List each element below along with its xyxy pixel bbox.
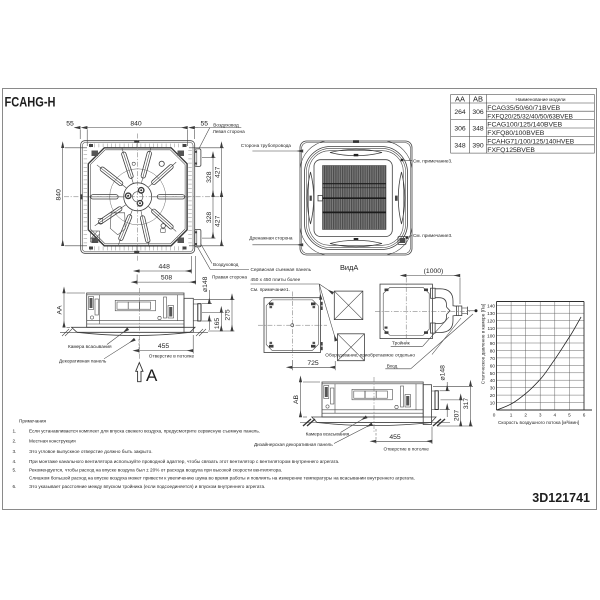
svg-text:40: 40 xyxy=(490,378,496,383)
svg-text:Примечания: Примечания xyxy=(19,419,47,424)
svg-text:Наименование модели: Наименование модели xyxy=(515,97,565,102)
svg-text:275: 275 xyxy=(225,309,232,321)
svg-text:10: 10 xyxy=(490,401,496,406)
svg-text:390: 390 xyxy=(472,142,484,149)
svg-text:⌀148: ⌀148 xyxy=(440,365,447,381)
svg-text:FXFQ125BVEB: FXFQ125BVEB xyxy=(487,147,535,154)
svg-text:60: 60 xyxy=(490,363,496,368)
svg-text:⌀148: ⌀148 xyxy=(202,276,209,292)
svg-text:(1000): (1000) xyxy=(424,268,444,275)
svg-text:317: 317 xyxy=(463,398,470,410)
svg-text:328: 328 xyxy=(206,212,213,224)
svg-text:Это указывает расстояние между: Это указывает расстояние между впуском т… xyxy=(29,483,265,489)
svg-text:5.: 5. xyxy=(13,468,17,473)
svg-text:450 x 450 плиты более: 450 x 450 плиты более xyxy=(251,277,301,282)
svg-text:80: 80 xyxy=(490,348,496,353)
svg-text:2.: 2. xyxy=(13,439,17,444)
svg-text:FCAG35/50/60/71BVEB: FCAG35/50/60/71BVEB xyxy=(487,105,560,112)
svg-text:Декоративная панель: Декоративная панель xyxy=(59,358,107,363)
svg-text:1.: 1. xyxy=(13,429,17,434)
svg-text:427: 427 xyxy=(214,166,221,178)
svg-text:См. примечание3.: См. примечание3. xyxy=(413,159,452,164)
svg-text:55: 55 xyxy=(201,120,209,127)
svg-text:Правая сторона: Правая сторона xyxy=(212,274,247,279)
svg-text:120: 120 xyxy=(487,319,495,324)
svg-text:110: 110 xyxy=(488,326,496,331)
svg-text:Сервисная съемная панель: Сервисная съемная панель xyxy=(251,267,312,272)
svg-text:50: 50 xyxy=(490,371,496,376)
svg-text:Дренажная сторона: Дренажная сторона xyxy=(249,236,293,241)
svg-text:4.: 4. xyxy=(13,459,17,464)
svg-text:4: 4 xyxy=(553,413,556,418)
svg-text:Скорость воздушного потока [м³: Скорость воздушного потока [м³/мин] xyxy=(498,420,579,425)
svg-text:348: 348 xyxy=(454,142,466,149)
svg-text:FCAHG71/100/125/140HVEB: FCAHG71/100/125/140HVEB xyxy=(487,138,574,145)
svg-text:АВ: АВ xyxy=(293,395,300,405)
svg-text:140: 140 xyxy=(487,304,495,309)
svg-text:448: 448 xyxy=(159,264,171,271)
svg-text:Рекомендуется, чтобы расход на: Рекомендуется, чтобы расход на впуске во… xyxy=(29,467,282,473)
svg-text:FXFQ80/100BVEB: FXFQ80/100BVEB xyxy=(487,130,545,137)
svg-text:306: 306 xyxy=(472,109,484,116)
svg-text:Местная конструкция: Местная конструкция xyxy=(29,439,76,444)
svg-text:См. примечание1.: См. примечание1. xyxy=(251,287,290,292)
svg-text:Статическое давление в камере: Статическое давление в камере [Па] xyxy=(481,304,486,384)
svg-text:455: 455 xyxy=(158,343,170,350)
svg-text:Камера всасывания: Камера всасывания xyxy=(306,431,350,436)
svg-text:1: 1 xyxy=(510,413,513,418)
svg-text:Воздуховод: Воздуховод xyxy=(213,262,239,267)
svg-text:725: 725 xyxy=(307,360,319,367)
svg-text:90: 90 xyxy=(490,341,496,346)
svg-text:427: 427 xyxy=(214,215,221,227)
svg-text:264: 264 xyxy=(454,109,466,116)
svg-text:70: 70 xyxy=(490,356,496,361)
svg-text:455: 455 xyxy=(389,434,401,441)
svg-text:207: 207 xyxy=(453,410,460,422)
svg-text:6: 6 xyxy=(583,413,586,418)
svg-text:Отверстие в потолке: Отверстие в потолке xyxy=(149,354,195,359)
svg-text:306: 306 xyxy=(454,126,466,133)
svg-text:328: 328 xyxy=(206,171,213,183)
svg-text:Вход: Вход xyxy=(387,363,398,368)
svg-text:165: 165 xyxy=(214,318,221,330)
svg-text:2: 2 xyxy=(524,413,527,418)
svg-text:0: 0 xyxy=(493,413,496,418)
svg-text:Отверстие в потолке: Отверстие в потолке xyxy=(384,447,430,452)
svg-text:Оборудование, приобретаемое от: Оборудование, приобретаемое отдельно xyxy=(325,353,415,358)
svg-text:A: A xyxy=(146,366,158,385)
svg-text:30: 30 xyxy=(490,386,496,391)
svg-text:FCAG100/125/140BVEB: FCAG100/125/140BVEB xyxy=(487,122,562,129)
svg-text:AA: AA xyxy=(57,305,64,315)
svg-text:При монтаже канального вентиля: При монтаже канального вентилятора испол… xyxy=(29,458,339,464)
svg-text:3.: 3. xyxy=(13,449,17,454)
svg-text:348: 348 xyxy=(472,126,484,133)
svg-text:Сторона трубопровода: Сторона трубопровода xyxy=(241,143,292,148)
svg-text:AB: AB xyxy=(473,94,483,103)
svg-text:3: 3 xyxy=(539,413,542,418)
svg-text:840: 840 xyxy=(130,120,142,127)
svg-text:3D121741: 3D121741 xyxy=(532,491,590,505)
svg-text:Тройник: Тройник xyxy=(392,339,411,345)
svg-text:Камера всасывания: Камера всасывания xyxy=(68,344,112,349)
svg-text:Если устанавливается комплект: Если устанавливается комплект для впуска… xyxy=(29,429,260,434)
svg-text:100: 100 xyxy=(487,334,495,339)
svg-text:FCAHG-H: FCAHG-H xyxy=(5,95,56,110)
svg-text:Левая сторона: Левая сторона xyxy=(213,129,245,134)
svg-text:См. примечание3.: См. примечание3. xyxy=(413,233,452,238)
svg-text:20: 20 xyxy=(490,393,496,398)
svg-text:Воздуховод: Воздуховод xyxy=(213,122,239,127)
svg-text:FXFQ20/25/32/40/50/63BVEB: FXFQ20/25/32/40/50/63BVEB xyxy=(487,113,573,120)
svg-text:Дизайнерская декоративная пане: Дизайнерская декоративная панель xyxy=(254,441,333,447)
svg-text:Это угловое выпускное отверсти: Это угловое выпускное отверстие должно б… xyxy=(29,449,153,454)
svg-text:Слишком большой расход на впус: Слишком большой расход на впуске воздуха… xyxy=(29,475,415,481)
svg-text:130: 130 xyxy=(487,311,495,316)
svg-text:55: 55 xyxy=(66,120,74,127)
svg-text:6.: 6. xyxy=(13,484,17,489)
svg-text:840: 840 xyxy=(55,189,62,201)
svg-text:ВидА: ВидА xyxy=(340,263,358,272)
svg-text:5: 5 xyxy=(568,413,571,418)
svg-text:AA: AA xyxy=(455,94,465,103)
svg-text:508: 508 xyxy=(161,275,173,282)
